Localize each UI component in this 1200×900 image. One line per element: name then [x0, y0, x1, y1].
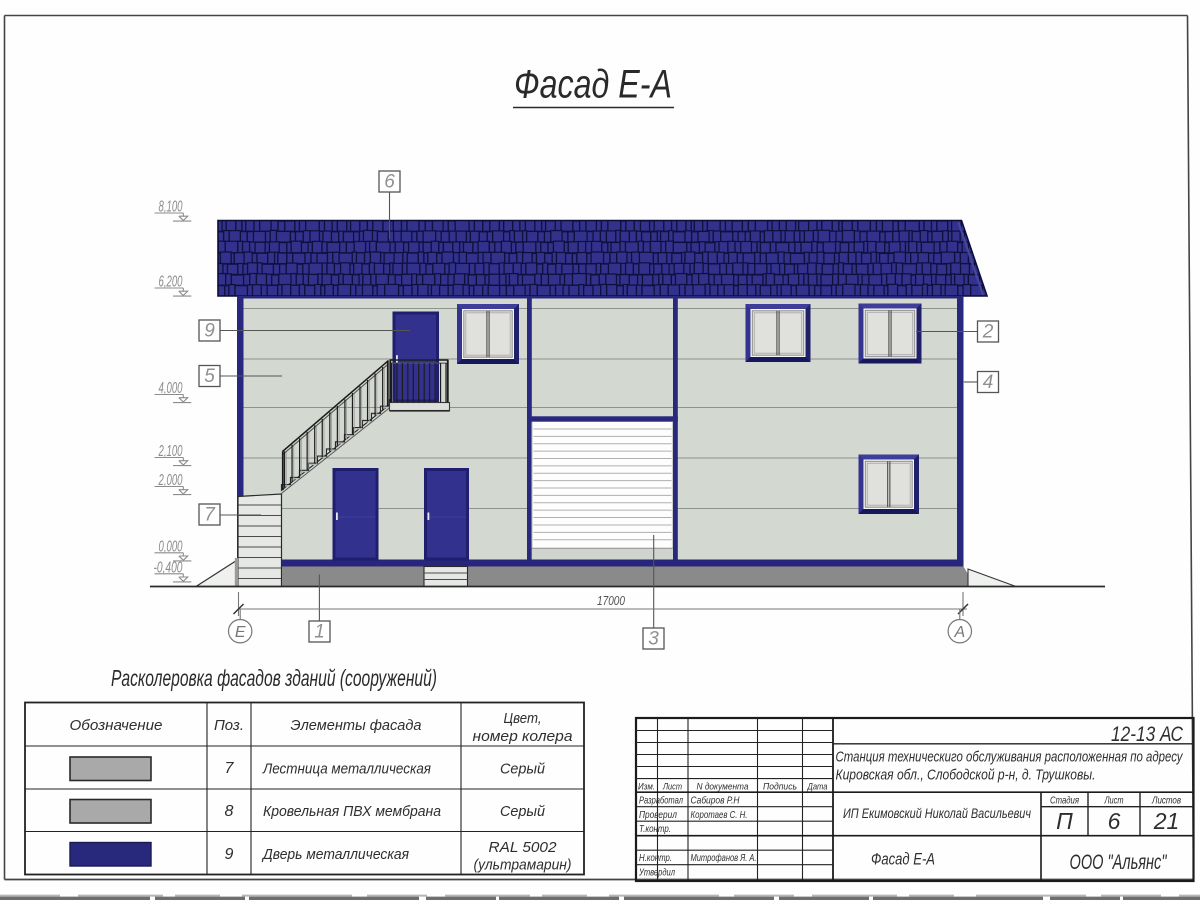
svg-text:Расколеровка фасадов зданий (с: Расколеровка фасадов зданий (сооружений) — [111, 665, 437, 691]
svg-text:Серый: Серый — [500, 761, 546, 778]
svg-text:17000: 17000 — [597, 593, 626, 608]
svg-text:Стадия: Стадия — [1050, 796, 1080, 807]
svg-text:Кровельная ПВХ мембрана: Кровельная ПВХ мембрана — [263, 803, 441, 820]
svg-text:7: 7 — [204, 505, 216, 526]
svg-text:А: А — [953, 624, 965, 641]
svg-text:Станция техническиго обслужива: Станция техническиго обслуживания распол… — [836, 750, 1184, 766]
svg-text:1: 1 — [314, 622, 325, 643]
svg-text:5: 5 — [204, 366, 215, 387]
svg-text:Цвет,: Цвет, — [504, 711, 542, 727]
svg-text:Проверил: Проверил — [639, 809, 677, 821]
svg-text:Лист: Лист — [1104, 796, 1124, 807]
svg-text:Листов: Листов — [1151, 796, 1181, 807]
svg-text:Дверь металлическая: Дверь металлическая — [261, 846, 409, 863]
svg-text:Митрофанов Я. А.: Митрофанов Я. А. — [691, 852, 757, 864]
svg-text:9: 9 — [204, 321, 215, 342]
svg-text:N документа: N документа — [697, 782, 749, 793]
svg-text:3: 3 — [648, 629, 659, 650]
svg-text:Изм.: Изм. — [638, 782, 655, 793]
svg-text:Утвердил: Утвердил — [638, 867, 675, 879]
svg-text:6: 6 — [1108, 808, 1121, 834]
svg-text:9: 9 — [225, 846, 234, 863]
svg-text:2: 2 — [982, 322, 994, 343]
svg-text:Лист: Лист — [662, 782, 682, 793]
svg-text:21: 21 — [1153, 808, 1180, 834]
svg-text:6: 6 — [384, 172, 395, 193]
svg-text:Фасад Е-А: Фасад Е-А — [871, 851, 935, 869]
svg-text:Обозначение: Обозначение — [70, 718, 163, 734]
svg-text:Е: Е — [235, 624, 246, 641]
svg-text:П: П — [1056, 808, 1073, 834]
svg-text:Сабиров Р.Н: Сабиров Р.Н — [691, 795, 740, 807]
svg-text:RAL 5002: RAL 5002 — [489, 839, 558, 856]
svg-text:Подпись: Подпись — [763, 782, 797, 793]
svg-text:номер колера: номер колера — [473, 729, 573, 745]
svg-text:ООО "Альянс": ООО "Альянс" — [1070, 851, 1168, 874]
svg-text:Кировская обл., Слободской р-н: Кировская обл., Слободской р-н, д. Трушк… — [836, 768, 1096, 784]
svg-text:Н.контр.: Н.контр. — [639, 852, 672, 864]
svg-text:ИП Екимовский Николай Васильев: ИП Екимовский Николай Васильевич — [843, 805, 1031, 821]
svg-text:Фасад Е-А: Фасад Е-А — [514, 63, 672, 107]
svg-text:Дата: Дата — [807, 782, 828, 793]
svg-text:Элементы фасада: Элементы фасада — [291, 718, 422, 734]
svg-text:7: 7 — [225, 760, 235, 777]
svg-text:12-13 АС: 12-13 АС — [1111, 723, 1184, 746]
svg-text:Серый: Серый — [500, 803, 546, 820]
svg-text:4: 4 — [983, 372, 994, 393]
svg-text:Коротаев С. Н.: Коротаев С. Н. — [691, 809, 748, 821]
svg-text:Лестница металлическая: Лестница металлическая — [262, 761, 431, 778]
svg-text:Поз.: Поз. — [214, 718, 244, 734]
svg-text:8: 8 — [225, 803, 234, 820]
svg-text:(ультрамарин): (ультрамарин) — [474, 857, 572, 874]
svg-text:Т.контр.: Т.контр. — [639, 823, 671, 835]
svg-text:Разработал: Разработал — [639, 795, 683, 807]
